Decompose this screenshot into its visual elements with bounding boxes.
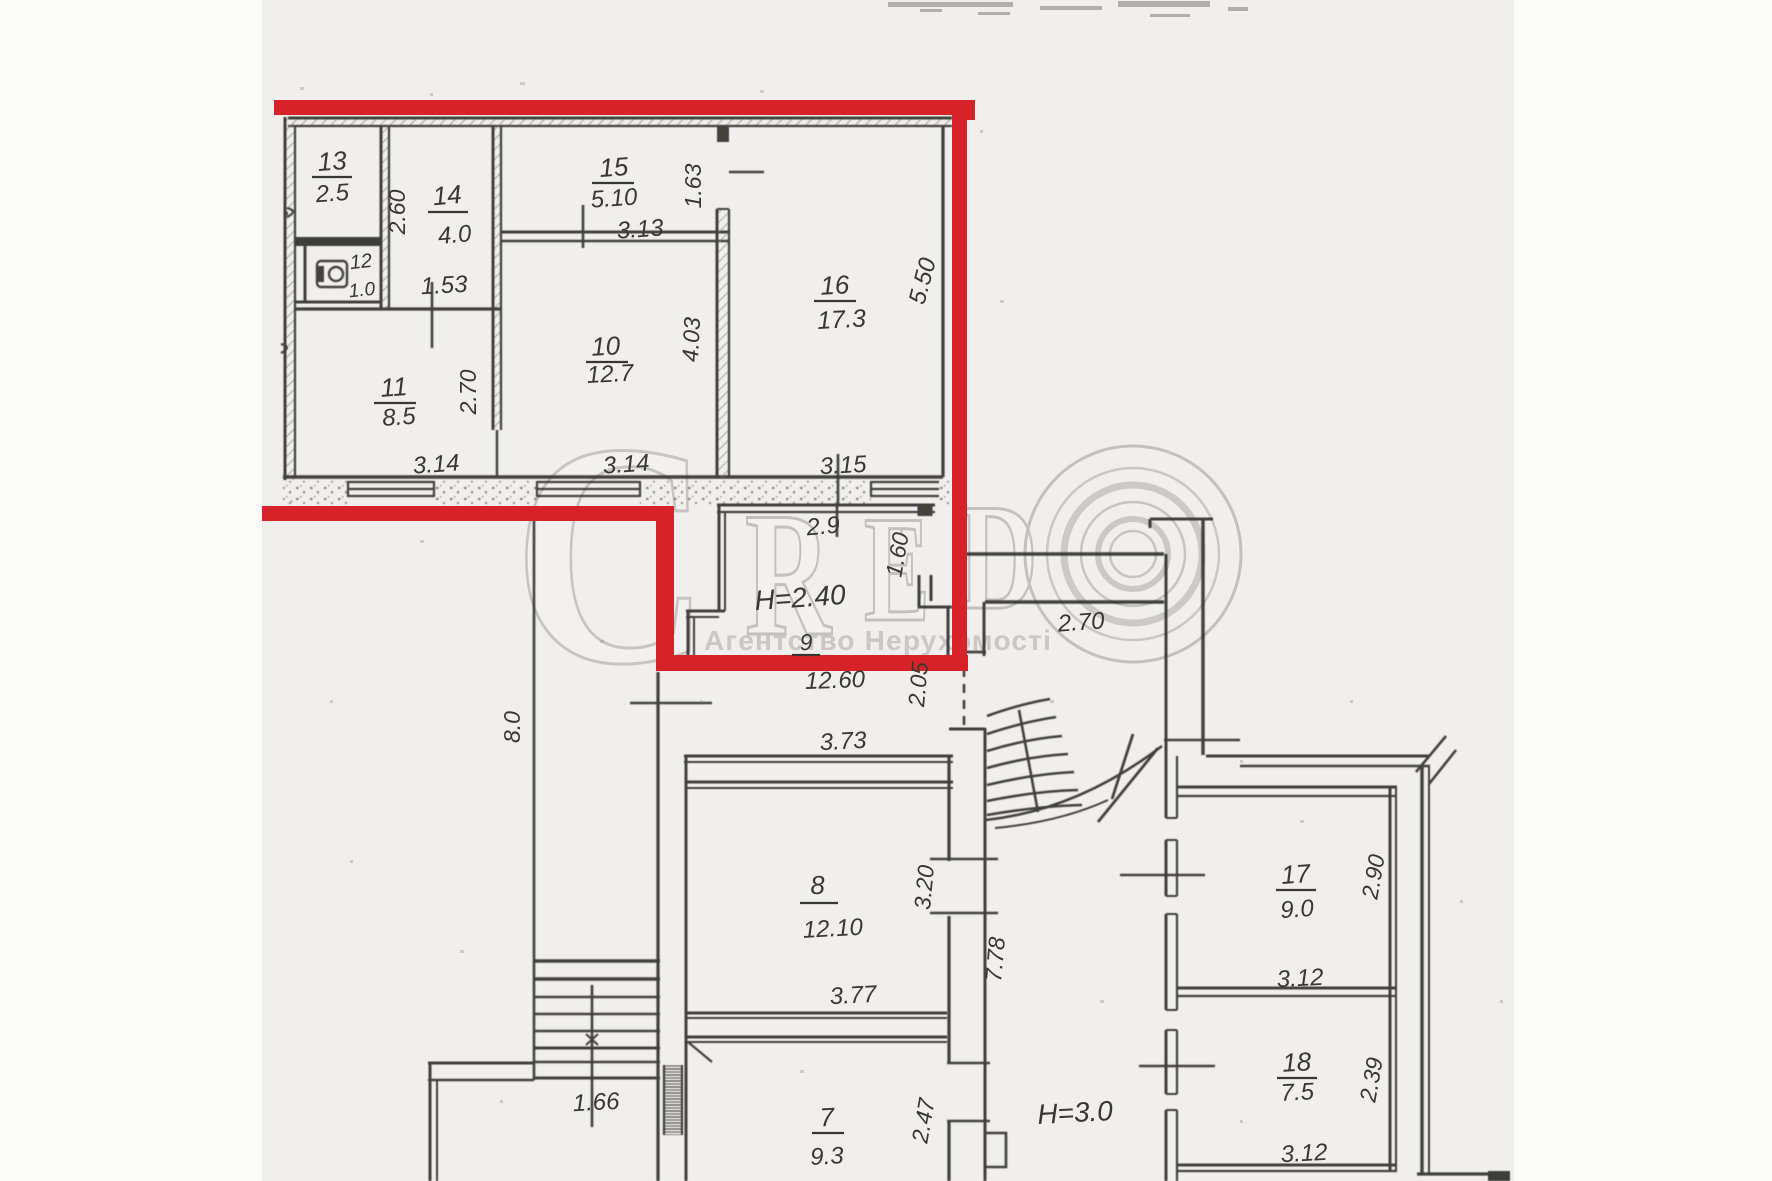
svg-text:17: 17: [1280, 858, 1312, 890]
svg-text:12.60: 12.60: [804, 666, 866, 695]
svg-text:3.77: 3.77: [829, 981, 879, 1010]
svg-text:12: 12: [349, 250, 373, 274]
svg-text:7.78: 7.78: [980, 936, 1010, 983]
svg-text:3.13: 3.13: [616, 214, 665, 244]
svg-text:1.0: 1.0: [348, 279, 377, 303]
svg-text:3.73: 3.73: [819, 727, 868, 756]
svg-text:9.3: 9.3: [810, 1142, 845, 1171]
svg-text:3.20: 3.20: [909, 864, 939, 911]
svg-text:14: 14: [431, 179, 462, 211]
svg-text:2.9: 2.9: [804, 512, 841, 542]
svg-text:1.63: 1.63: [680, 163, 706, 208]
svg-text:9: 9: [799, 629, 813, 656]
svg-text:10: 10: [590, 330, 621, 362]
svg-text:3.14: 3.14: [412, 449, 460, 479]
svg-text:H=2.40: H=2.40: [754, 579, 847, 616]
svg-text:12.7: 12.7: [586, 360, 636, 389]
svg-text:4.0: 4.0: [437, 220, 473, 250]
svg-text:2.70: 2.70: [455, 369, 481, 415]
svg-text:Агентство Нерухомості: Агентство Нерухомості: [704, 625, 1052, 656]
svg-text:1.66: 1.66: [572, 1088, 621, 1117]
svg-text:2.05: 2.05: [903, 661, 933, 709]
svg-text:15: 15: [598, 151, 629, 183]
svg-text:13: 13: [317, 145, 348, 177]
svg-text:18: 18: [1281, 1046, 1312, 1078]
svg-text:3.12: 3.12: [1276, 964, 1324, 993]
svg-text:H=3.0: H=3.0: [1037, 1095, 1114, 1130]
svg-text:5.10: 5.10: [590, 183, 639, 213]
svg-text:17.3: 17.3: [817, 304, 867, 335]
svg-text:2.60: 2.60: [384, 189, 410, 235]
svg-text:2.70: 2.70: [1056, 607, 1106, 637]
svg-text:8.0: 8.0: [499, 711, 525, 743]
svg-text:11: 11: [379, 371, 408, 403]
svg-text:2.5: 2.5: [314, 179, 351, 208]
svg-text:8: 8: [809, 870, 826, 901]
svg-text:4.03: 4.03: [677, 316, 705, 362]
svg-text:3.14: 3.14: [602, 449, 650, 479]
svg-text:8.5: 8.5: [381, 403, 417, 432]
svg-text:16: 16: [820, 269, 851, 301]
svg-text:9.0: 9.0: [1279, 895, 1315, 924]
svg-text:7.5: 7.5: [1280, 1078, 1315, 1107]
svg-text:12.10: 12.10: [802, 914, 864, 944]
svg-text:3.15: 3.15: [819, 451, 868, 480]
svg-text:1.53: 1.53: [420, 271, 469, 300]
svg-text:C: C: [513, 378, 711, 730]
svg-text:3.12: 3.12: [1280, 1139, 1328, 1168]
